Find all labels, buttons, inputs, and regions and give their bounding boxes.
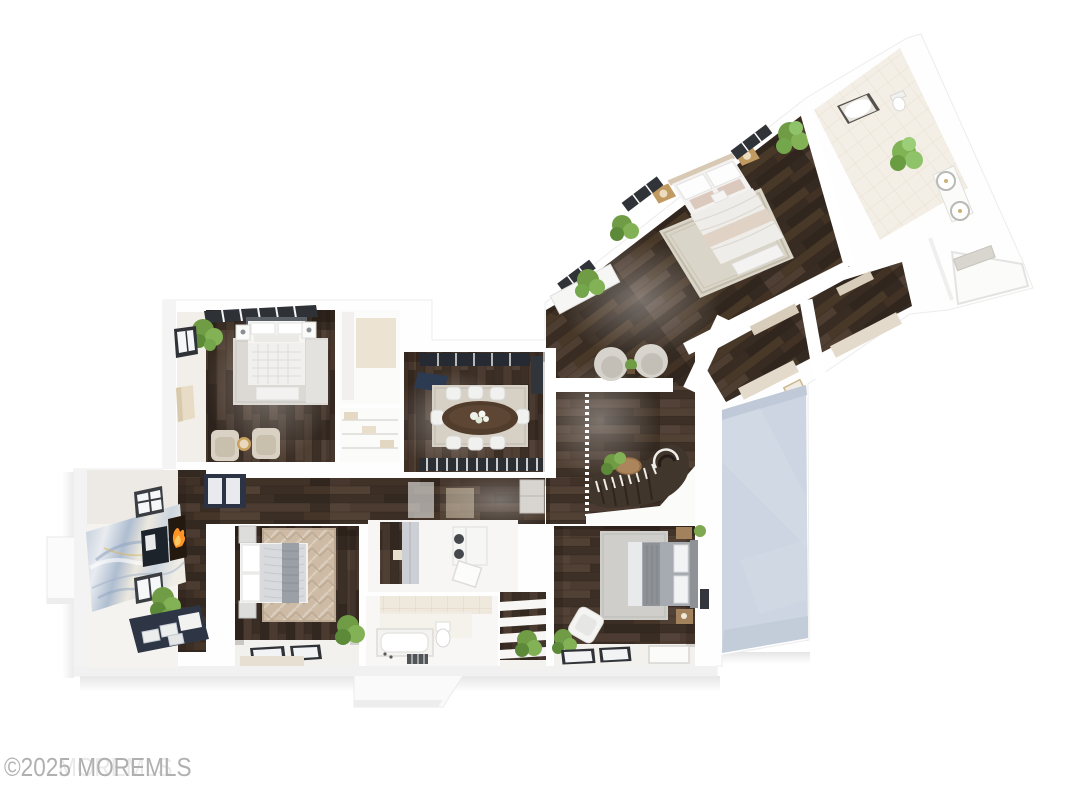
svg-text:©2025 MOREMLS: ©2025 MOREMLS: [4, 754, 192, 783]
